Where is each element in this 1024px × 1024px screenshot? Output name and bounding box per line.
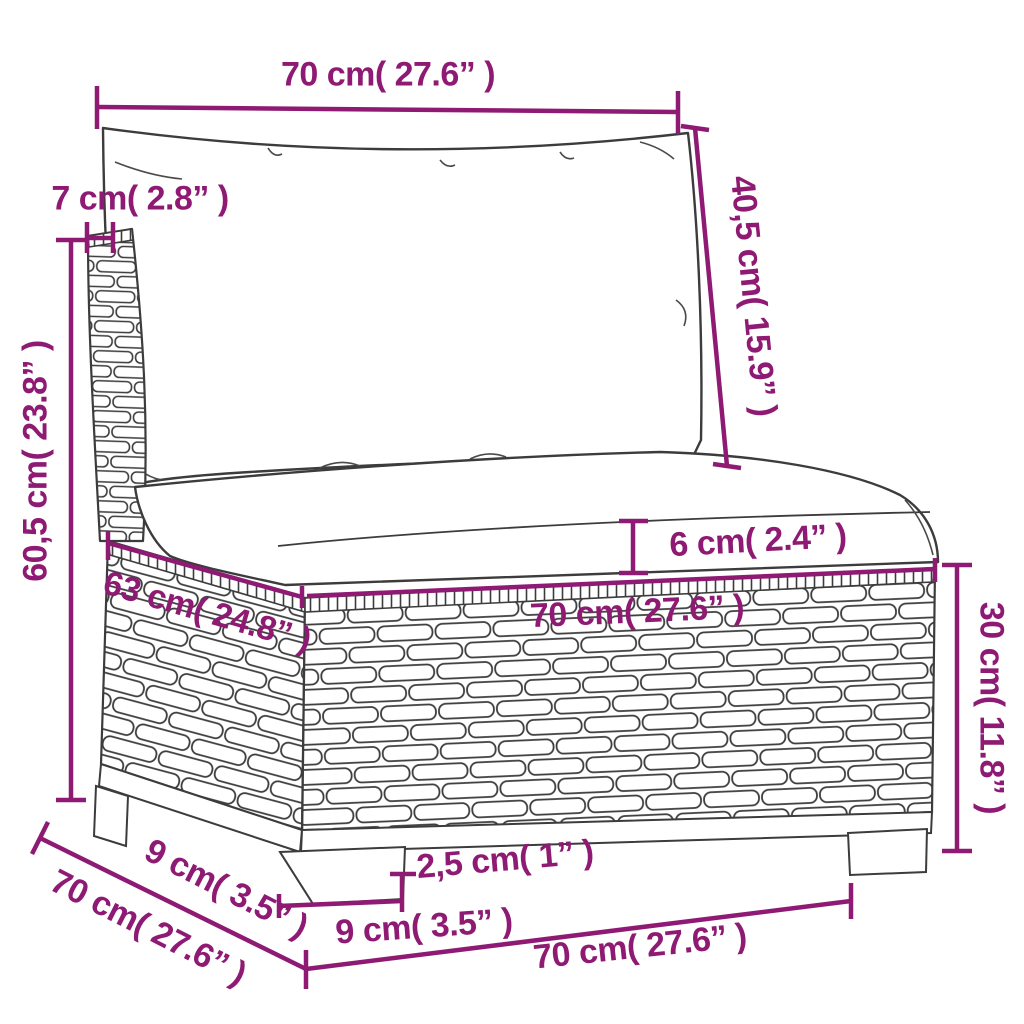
dim-label-back-frame-thickness: 7 cm( 2.8” ) [51,180,228,219]
dimension-diagram: 70 cm( 27.6” ) 7 cm( 2.8” ) 60,5 cm( 23.… [0,0,1024,1024]
front-left-leg [280,847,405,904]
back-left-leg [94,786,128,846]
dim-line-back-height [56,240,86,800]
dim-label-base-height: 30 cm( 11.8” ) [972,602,1011,814]
front-right-leg [848,829,927,875]
dim-line-base-height [942,565,972,851]
sofa-illustration [88,128,938,904]
dim-label-back-cushion-width: 70 cm( 27.6” ) [281,56,495,95]
dim-label-back-height: 60,5 cm( 23.8” ) [17,340,56,581]
